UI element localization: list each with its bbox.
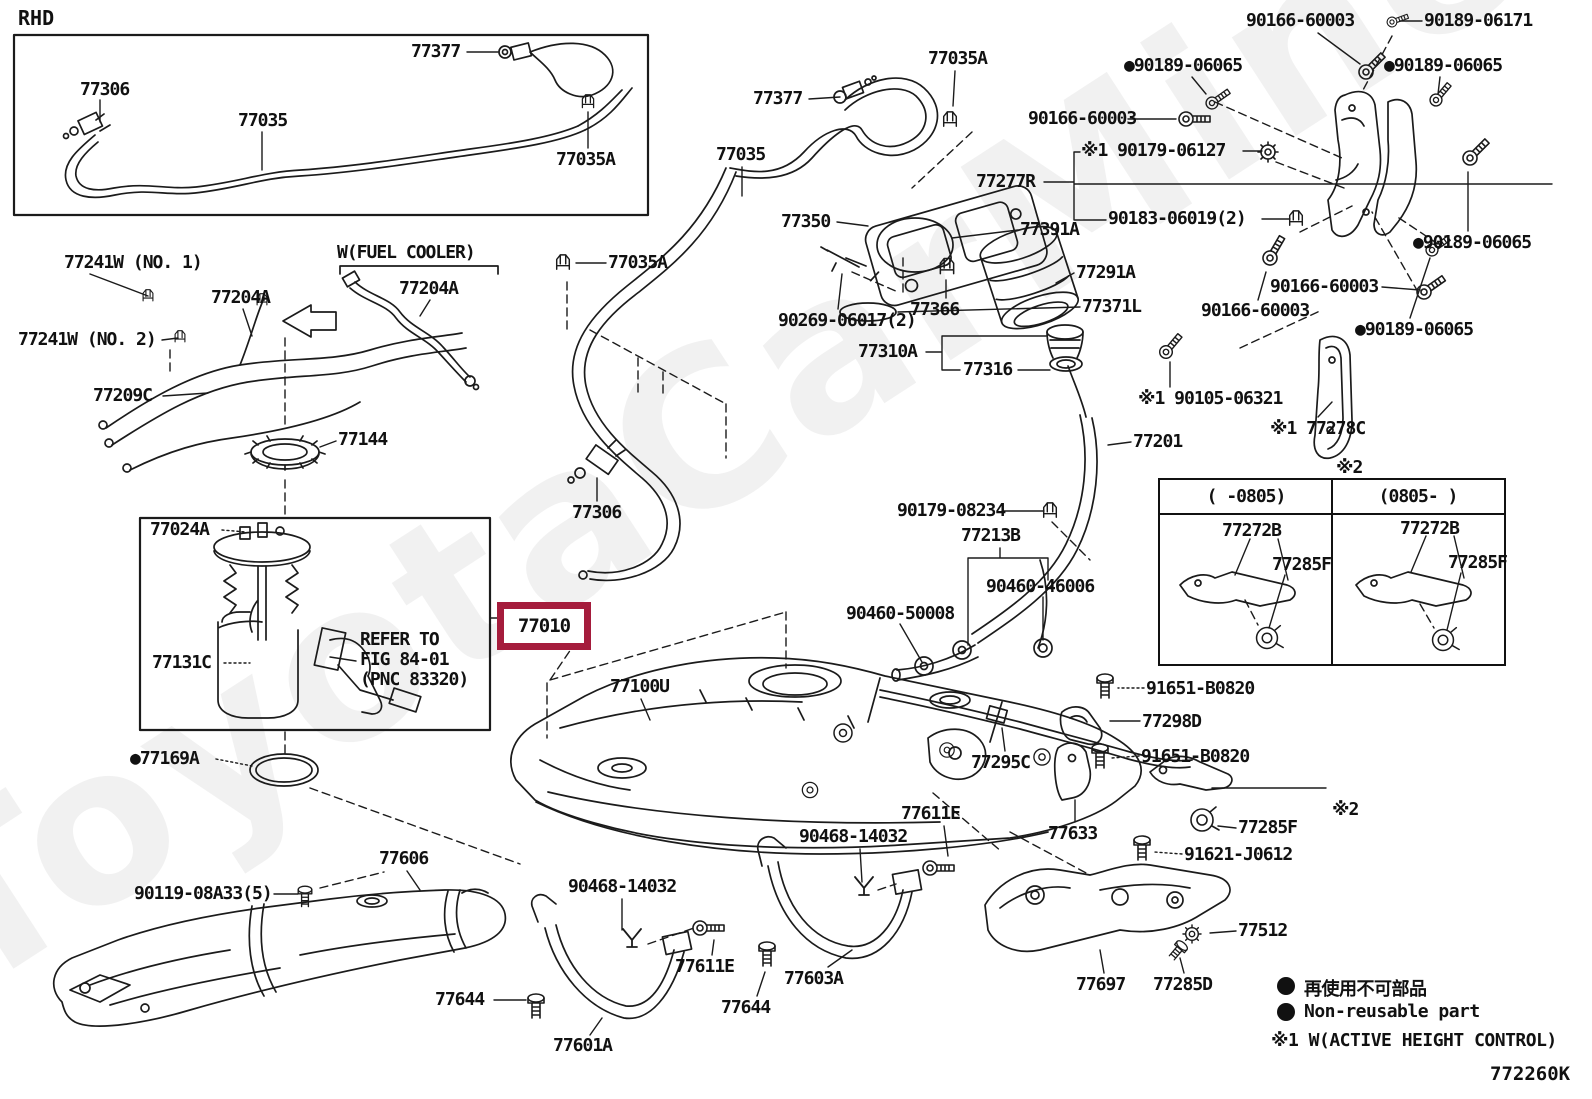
part-label-90166-60003: 90166-60003 bbox=[1270, 277, 1378, 297]
part-label-77371l: 77371L bbox=[1082, 297, 1141, 317]
part-label-90460-50008: 90460-50008 bbox=[846, 604, 954, 624]
part-label-90119-08a33-5: 90119-08A33(5) bbox=[134, 884, 272, 904]
part-label-77024a: 77024A bbox=[150, 520, 209, 540]
inset-title: RHD bbox=[18, 6, 54, 30]
table-divider bbox=[1331, 480, 1333, 664]
part-label-90189-06065: ●90189-06065 bbox=[1413, 233, 1531, 253]
part-label-77366: 77366 bbox=[910, 300, 959, 320]
part-label-77377: 77377 bbox=[411, 42, 460, 62]
table-part-clamp-1: 77285F bbox=[1272, 554, 1331, 575]
tank-gasket bbox=[250, 754, 318, 786]
tank-band-left bbox=[532, 895, 692, 1019]
part-label-77316: 77316 bbox=[963, 360, 1012, 380]
part-label-90183-06019-2: 90183-06019(2) bbox=[1108, 209, 1246, 229]
filler-hose bbox=[892, 639, 1052, 681]
part-label-90166-60003: 90166-60003 bbox=[1028, 109, 1136, 129]
tank-band-right bbox=[758, 837, 922, 959]
part-label-90460-46006: 90460-46006 bbox=[986, 577, 1094, 597]
part-label-77285d: 77285D bbox=[1153, 975, 1212, 995]
table-part-bracket-1: 77272B bbox=[1222, 520, 1281, 541]
part-label-77035a: 77035A bbox=[556, 150, 615, 170]
part-label-77306: 77306 bbox=[80, 80, 129, 100]
legend-non-reusable-en: Non-reusable part bbox=[1304, 1001, 1480, 1022]
part-label-77131c: 77131C bbox=[152, 653, 211, 673]
part-label-1-90179-06127: ※1 90179-06127 bbox=[1081, 141, 1225, 161]
part-label-refer-to-fig-84-01-pnc-83320: REFER TO FIG 84-01 (PNC 83320) bbox=[360, 630, 468, 690]
highlighted-part-number: 77010 bbox=[518, 615, 570, 637]
part-label-77213b: 77213B bbox=[961, 526, 1020, 546]
part-label-77350: 77350 bbox=[781, 212, 830, 232]
table-part-clamp-2: 77285F bbox=[1448, 552, 1507, 573]
part-label-2: ※2 bbox=[1332, 800, 1358, 820]
part-label-77285f: 77285F bbox=[1238, 818, 1297, 838]
part-label-1-77278c: ※1 77278C bbox=[1270, 419, 1365, 439]
part-label-77697: 77697 bbox=[1076, 975, 1125, 995]
part-label-77306: 77306 bbox=[572, 503, 621, 523]
part-label-77035a: 77035A bbox=[928, 49, 987, 69]
part-label-w-fuel-cooler: W(FUEL COOLER) bbox=[337, 243, 475, 263]
part-label-77310a: 77310A bbox=[858, 342, 917, 362]
part-label-2: ※2 bbox=[1336, 458, 1362, 478]
part-label-77295c: 77295C bbox=[971, 753, 1030, 773]
part-label-90166-60003: 90166-60003 bbox=[1201, 301, 1309, 321]
part-label-77204a: 77204A bbox=[211, 288, 270, 308]
part-label-90189-06065: ●90189-06065 bbox=[1355, 320, 1473, 340]
part-label-77204a: 77204A bbox=[399, 279, 458, 299]
part-label-77209c: 77209C bbox=[93, 386, 152, 406]
bracket-77633 bbox=[1055, 743, 1091, 800]
legend-non-reusable-jp: 再使用不可部品 bbox=[1304, 975, 1427, 1001]
pump-module-box bbox=[140, 518, 490, 730]
part-label-77633: 77633 bbox=[1048, 824, 1097, 844]
part-label-77298d: 77298D bbox=[1142, 712, 1201, 732]
part-label-77391a: 77391A bbox=[1020, 220, 1079, 240]
diagram-code: 772260K bbox=[1490, 1063, 1570, 1085]
table-period-col1: ( -0805) bbox=[1160, 480, 1332, 513]
part-label-77241w-no-2: 77241W (NO. 2) bbox=[18, 330, 156, 350]
part-label-77377: 77377 bbox=[753, 89, 802, 109]
part-label-77512: 77512 bbox=[1238, 921, 1287, 941]
tank-protector bbox=[985, 864, 1230, 951]
part-label-77035: 77035 bbox=[238, 111, 287, 131]
part-label-90269-06017-2: 90269-06017(2) bbox=[778, 311, 916, 331]
part-label-77201: 77201 bbox=[1133, 432, 1182, 452]
direction-arrow bbox=[283, 305, 336, 337]
part-label-77291a: 77291A bbox=[1076, 263, 1135, 283]
part-label-91621-j0612: 91621-J0612 bbox=[1184, 845, 1292, 865]
part-label-77601a: 77601A bbox=[553, 1036, 612, 1056]
fuel-tank bbox=[511, 658, 1141, 854]
table-part-bracket-2: 77272B bbox=[1400, 518, 1459, 539]
part-label-77611e: 77611E bbox=[675, 957, 734, 977]
part-label-90189-06065: ●90189-06065 bbox=[1124, 56, 1242, 76]
part-label-90468-14032: 90468-14032 bbox=[799, 827, 907, 847]
pipe-shield bbox=[1314, 336, 1352, 458]
non-reusable-bullet-en bbox=[1277, 1003, 1295, 1021]
part-label-91651-b0820: 91651-B0820 bbox=[1146, 679, 1254, 699]
part-label-91651-b0820: 91651-B0820 bbox=[1141, 747, 1249, 767]
non-reusable-bullet-jp bbox=[1277, 977, 1295, 995]
inlet-parts bbox=[1047, 325, 1083, 371]
part-label-77035a: 77035A bbox=[608, 253, 667, 273]
part-label-77644: 77644 bbox=[435, 990, 484, 1010]
part-label-77144: 77144 bbox=[338, 430, 387, 450]
part-label-90166-60003: 90166-60003 bbox=[1246, 11, 1354, 31]
part-label-77611e: 77611E bbox=[901, 804, 960, 824]
part-label-77100u: 77100U bbox=[610, 677, 669, 697]
part-label-1-90105-06321: ※1 90105-06321 bbox=[1138, 389, 1282, 409]
part-label-77169a: ●77169A bbox=[130, 749, 199, 769]
part-label-90189-06171: 90189-06171 bbox=[1424, 11, 1532, 31]
lid-gasket bbox=[877, 218, 953, 272]
retainer-ring bbox=[245, 436, 325, 470]
table-period-col2: (0805- ) bbox=[1332, 480, 1504, 513]
part-label-77603a: 77603A bbox=[784, 969, 843, 989]
parts-diagram-page: ToyotaCarMine.ru bbox=[0, 0, 1592, 1099]
part-label-90189-06065: ●90189-06065 bbox=[1384, 56, 1502, 76]
filler-door-hinge bbox=[1328, 92, 1416, 237]
part-label-77035: 77035 bbox=[716, 145, 765, 165]
part-label-77277r: 77277R bbox=[976, 172, 1035, 192]
legend-active-height-note: ※1 W(ACTIVE HEIGHT CONTROL) bbox=[1271, 1030, 1557, 1051]
part-label-77644: 77644 bbox=[721, 998, 770, 1018]
lid-screw bbox=[821, 247, 866, 271]
part-label-77241w-no-1: 77241W (NO. 1) bbox=[64, 253, 202, 273]
rhd-inset bbox=[14, 35, 648, 215]
part-label-90179-08234: 90179-08234 bbox=[897, 501, 1005, 521]
variant-table: ( -0805) (0805- ) 77272B 77285F 77272B 7… bbox=[1158, 478, 1506, 666]
part-label-90468-14032: 90468-14032 bbox=[568, 877, 676, 897]
part-label-77606: 77606 bbox=[379, 849, 428, 869]
highlighted-part-box: 77010 bbox=[497, 602, 591, 650]
